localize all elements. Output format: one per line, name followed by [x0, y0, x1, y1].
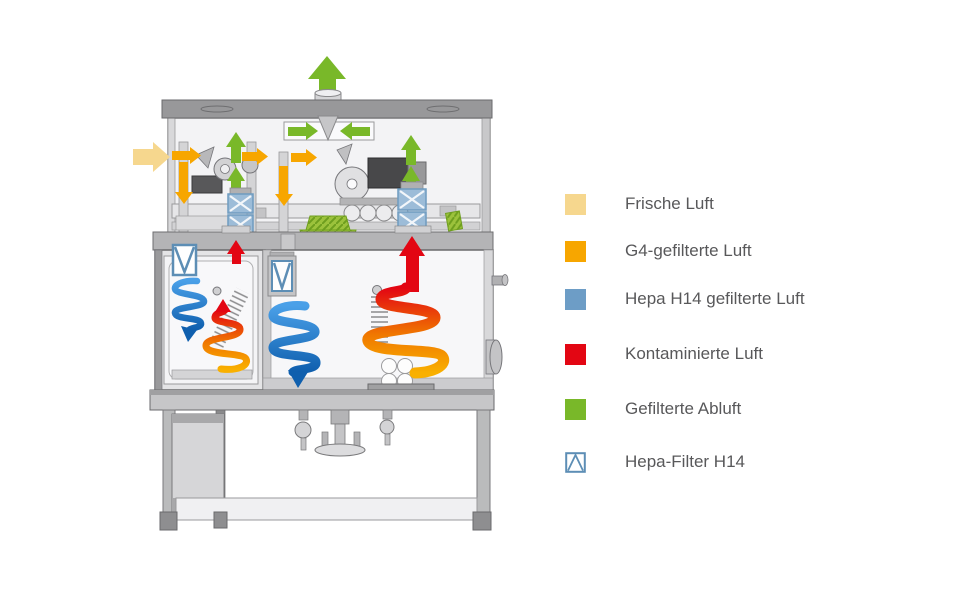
side-knob — [492, 275, 508, 286]
legend-item-frische-luft: Frische Luft — [565, 193, 714, 215]
foot-right — [473, 512, 491, 530]
leg-right — [477, 410, 490, 516]
abluft-swatch — [565, 399, 586, 420]
legend-item-hepa-h14-luft: Hepa H14 gefilterte Luft — [565, 288, 805, 310]
drain-valve-right — [380, 410, 394, 445]
legend-label: Frische Luft — [625, 194, 714, 214]
legend: Frische Luft G4-gefilterte Luft Hepa H14… — [565, 0, 895, 604]
side-port — [486, 340, 502, 374]
legend-label: Hepa H14 gefilterte Luft — [625, 289, 805, 309]
legend-label: Kontaminierte Luft — [625, 344, 763, 364]
legend-item-g4-gefilterte-luft: G4-gefilterte Luft — [565, 240, 752, 262]
legend-label: Gefilterte Abluft — [625, 399, 741, 419]
coil-ball-left — [213, 287, 221, 295]
prefilter-small-green — [446, 211, 463, 231]
machine-stand — [150, 390, 494, 530]
legend-label: G4-gefilterte Luft — [625, 241, 752, 261]
hepa-panel-left-chamber — [173, 245, 196, 275]
legend-item-hepa-filter-h14: Hepa-Filter H14 — [565, 451, 745, 473]
foot-mid — [214, 512, 227, 528]
roller — [360, 205, 376, 221]
g4-luft-swatch — [565, 241, 586, 262]
under-counter-cabinet — [172, 414, 224, 512]
drain-valve-left — [295, 410, 311, 450]
screenshot-root: Frische Luft G4-gefilterte Luft Hepa H14… — [0, 0, 960, 604]
roller — [376, 205, 392, 221]
foot-left — [160, 512, 177, 530]
hepa-luft-swatch — [565, 289, 586, 310]
legend-label: Hepa-Filter H14 — [625, 452, 745, 472]
frische-luft-swatch — [565, 194, 586, 215]
fresh-air-inlet-arrow — [133, 142, 170, 172]
hepa-panel-main-chamber — [268, 252, 296, 296]
legend-item-gefilterte-abluft: Gefilterte Abluft — [565, 398, 741, 420]
kontaminierte-luft-swatch — [565, 344, 586, 365]
left-chamber — [155, 250, 265, 390]
drain-assembly-center — [315, 410, 365, 456]
hepa-filter-h14-icon — [565, 452, 586, 473]
legend-item-kontaminierte-luft: Kontaminierte Luft — [565, 343, 763, 365]
